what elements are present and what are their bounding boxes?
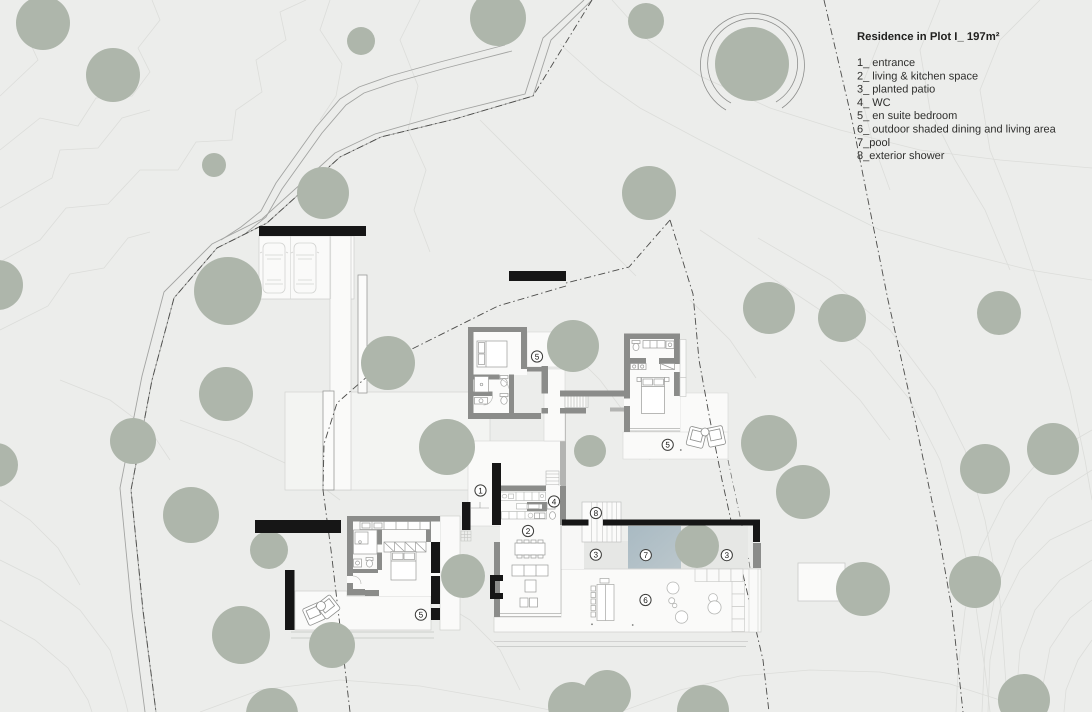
svg-text:3: 3 bbox=[594, 551, 599, 560]
svg-text:7: 7 bbox=[644, 551, 649, 560]
svg-text:4_ WC: 4_ WC bbox=[857, 97, 891, 109]
svg-text:4: 4 bbox=[552, 497, 557, 506]
svg-text:2: 2 bbox=[526, 527, 531, 536]
svg-text:8: 8 bbox=[594, 509, 599, 518]
svg-text:3_ planted patio: 3_ planted patio bbox=[857, 84, 935, 96]
svg-text:8_exterior shower: 8_exterior shower bbox=[857, 150, 945, 162]
svg-text:5: 5 bbox=[665, 441, 670, 450]
svg-text:1_ entrance: 1_ entrance bbox=[857, 57, 915, 69]
svg-text:6: 6 bbox=[643, 596, 648, 605]
svg-text:5: 5 bbox=[535, 352, 540, 361]
svg-text:5: 5 bbox=[419, 611, 424, 620]
svg-text:1: 1 bbox=[478, 486, 483, 495]
svg-text:Residence in Plot I_ 197m²: Residence in Plot I_ 197m² bbox=[857, 31, 1000, 43]
svg-text:5_ en suite bedroom: 5_ en suite bedroom bbox=[857, 110, 957, 122]
svg-text:3: 3 bbox=[725, 551, 730, 560]
svg-text:6_ outdoor shaded dining and l: 6_ outdoor shaded dining and living area bbox=[857, 124, 1057, 136]
svg-text:7_pool: 7_pool bbox=[857, 137, 890, 149]
svg-text:2_ living & kitchen space: 2_ living & kitchen space bbox=[857, 70, 978, 82]
